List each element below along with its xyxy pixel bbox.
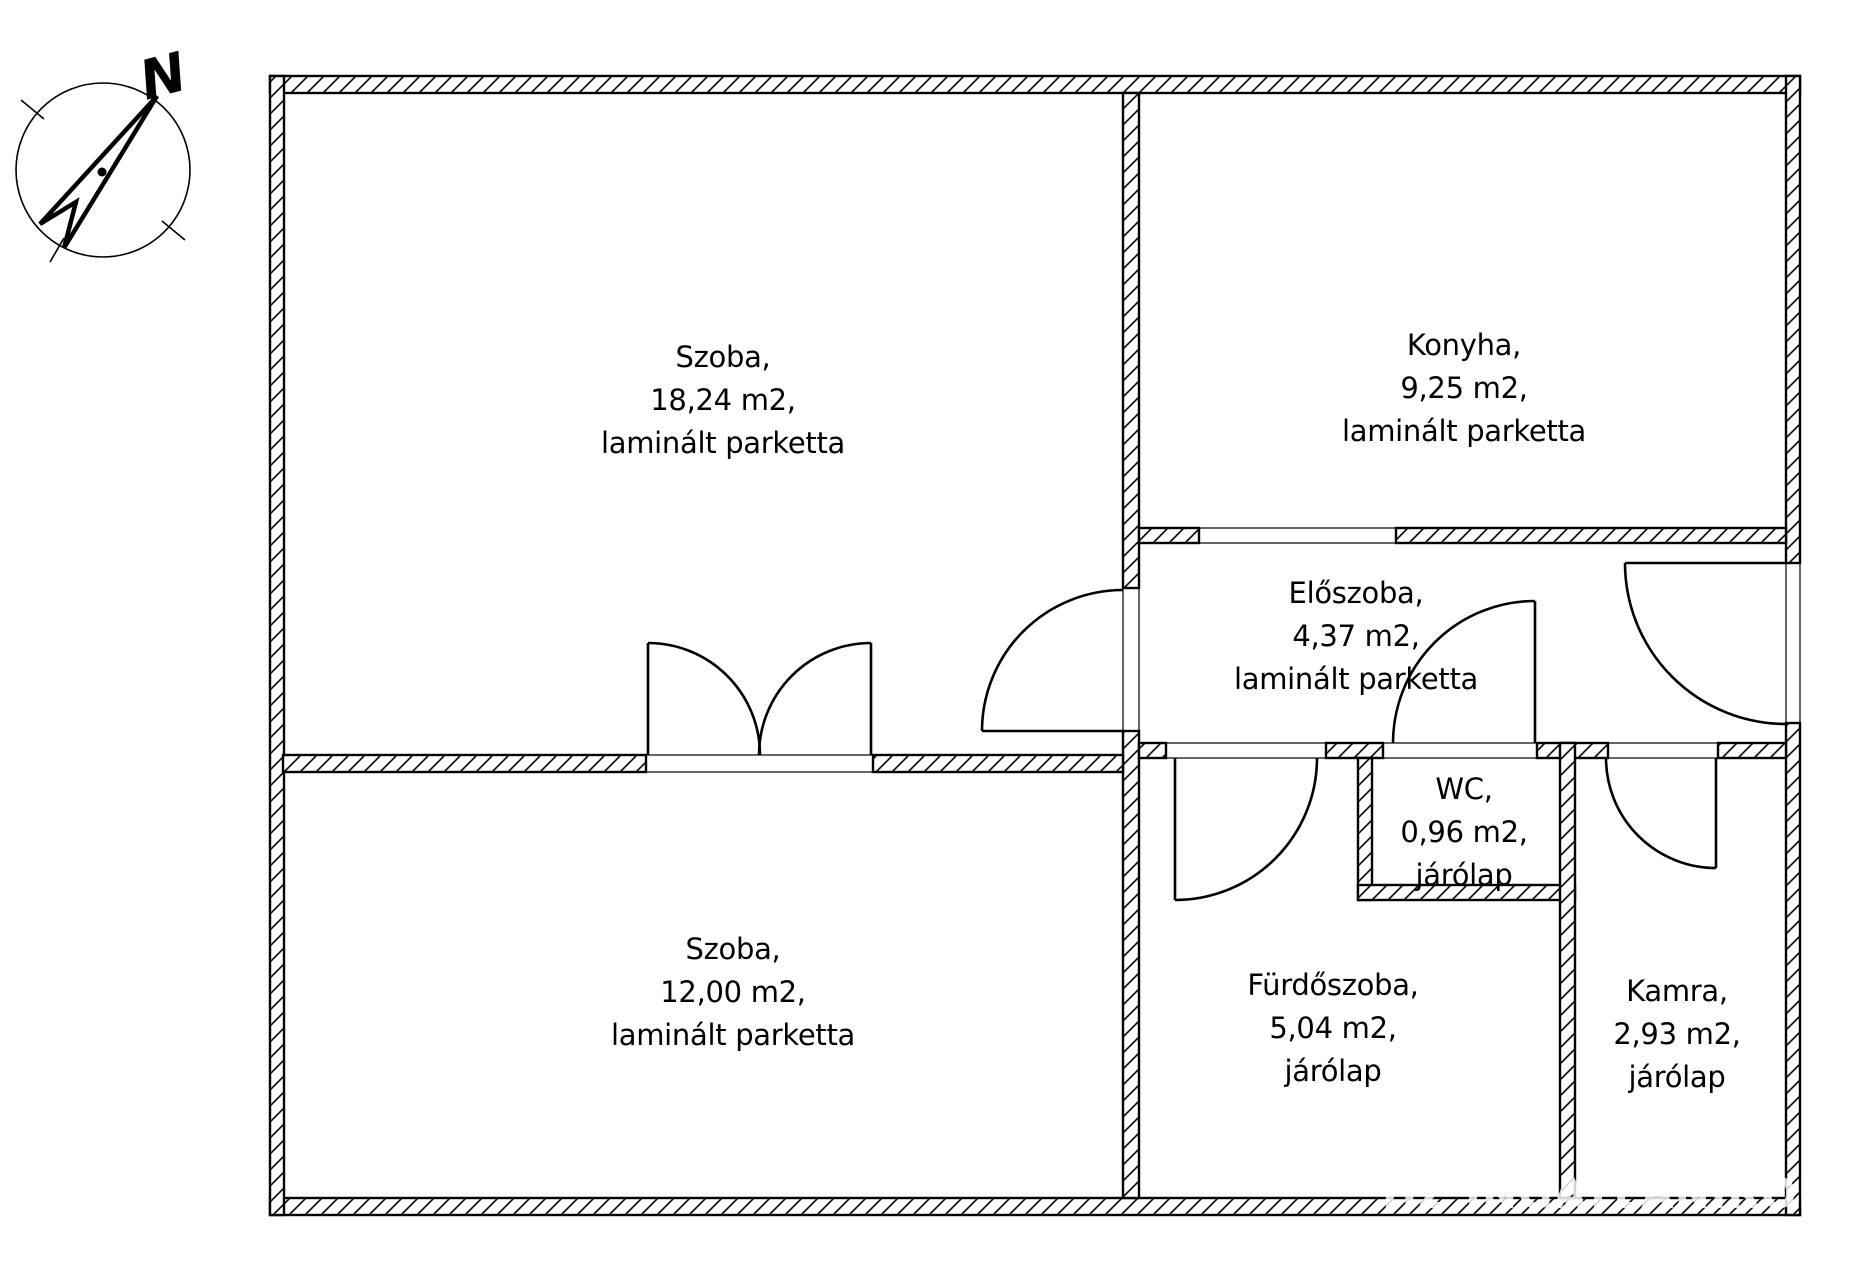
room-floor: laminált parketta	[601, 422, 845, 465]
wall-segment	[1396, 528, 1786, 543]
wall-segment	[1326, 743, 1383, 758]
room-name: Konyha,	[1342, 324, 1586, 367]
entrance-door	[1625, 563, 1786, 724]
room-area: 0,96 m2,	[1400, 811, 1527, 854]
room-floor: laminált parketta	[1342, 410, 1586, 453]
door-szoba-eloszoba	[982, 590, 1123, 731]
wall-segment	[873, 755, 1123, 772]
doors	[648, 563, 1786, 900]
door-arc	[759, 643, 871, 755]
door-arc	[1625, 563, 1786, 724]
room-label-eloszoba: Előszoba, 4,37 m2, laminált parketta	[1234, 572, 1478, 701]
room-area: 9,25 m2,	[1342, 367, 1586, 410]
wall-segment	[1123, 731, 1139, 1198]
door-kamra	[1606, 758, 1716, 868]
door-furdoszoba	[1175, 758, 1317, 900]
compass-tick	[50, 238, 64, 262]
room-label-szoba-top: Szoba, 18,24 m2, laminált parketta	[601, 336, 845, 465]
room-floor: járólap	[1400, 854, 1527, 897]
room-name: Szoba,	[601, 336, 845, 379]
room-name: Kamra,	[1613, 970, 1740, 1013]
room-area: 2,93 m2,	[1613, 1013, 1740, 1056]
room-floor: laminált parketta	[1234, 658, 1478, 701]
wall-segment	[270, 76, 284, 1215]
wall-segment	[270, 76, 1800, 93]
room-area: 4,37 m2,	[1234, 615, 1478, 658]
wall-segment	[1786, 723, 1800, 1215]
room-label-kamra: Kamra, 2,93 m2, járólap	[1613, 970, 1740, 1099]
room-area: 5,04 m2,	[1247, 1007, 1418, 1050]
room-name: WC,	[1400, 768, 1527, 811]
wall-segment	[1123, 93, 1139, 588]
watermark: HZ INGATLANIRODA	[1382, 1172, 1867, 1216]
wall-segment	[1139, 528, 1199, 543]
room-label-szoba-bottom: Szoba, 12,00 m2, laminált parketta	[611, 928, 855, 1057]
wall-opening	[1139, 743, 1786, 758]
room-floor: járólap	[1613, 1056, 1740, 1099]
wall-segment	[1139, 743, 1166, 758]
room-floor: laminált parketta	[611, 1014, 855, 1057]
room-name: Fürdőszoba,	[1247, 964, 1418, 1007]
room-floor: járólap	[1247, 1050, 1418, 1093]
compass-center-dot	[98, 168, 107, 177]
room-label-konyha: Konyha, 9,25 m2, laminált parketta	[1342, 324, 1586, 453]
compass-north-label: N	[133, 40, 193, 113]
room-area: 18,24 m2,	[601, 379, 845, 422]
compass-north-icon: N	[16, 40, 193, 262]
door-arc	[1606, 758, 1716, 868]
wall-segment	[1560, 743, 1575, 1198]
room-area: 12,00 m2,	[611, 971, 855, 1014]
wall-segment	[1718, 743, 1786, 758]
room-name: Szoba,	[611, 928, 855, 971]
door-arc	[1175, 758, 1317, 900]
floor-plan-drawing: N	[0, 0, 1867, 1280]
wall-segment	[1358, 758, 1372, 900]
floor-plan: N Szoba, 18,24 m2, laminált parketta Kon…	[0, 0, 1867, 1280]
wall-segment	[1786, 76, 1800, 563]
room-label-furdoszoba: Fürdőszoba, 5,04 m2, járólap	[1247, 964, 1418, 1093]
walls	[270, 76, 1800, 1215]
room-name: Előszoba,	[1234, 572, 1478, 615]
room-label-wc: WC, 0,96 m2, járólap	[1400, 768, 1527, 897]
double-door-szoba	[648, 643, 871, 755]
wall-segment	[283, 755, 646, 772]
door-arc	[982, 590, 1123, 731]
door-arc	[648, 643, 760, 755]
